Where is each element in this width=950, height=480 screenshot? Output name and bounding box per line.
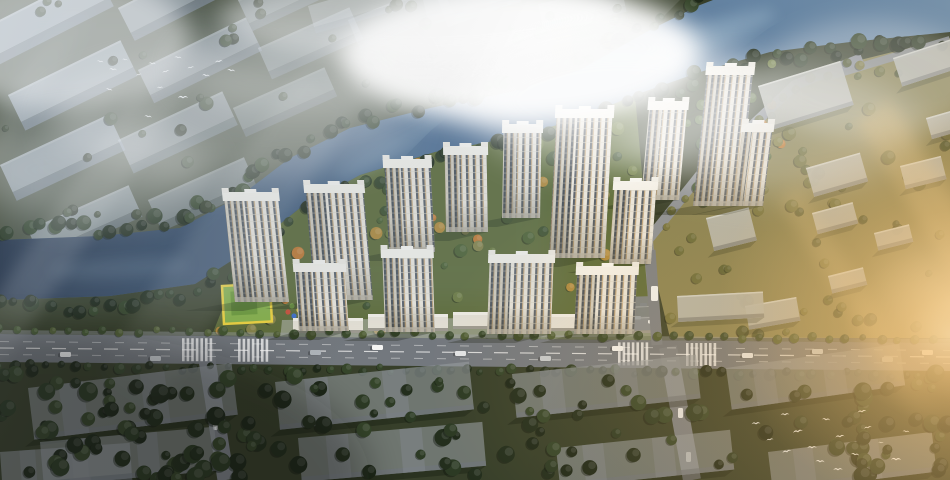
atmosphere xyxy=(0,0,950,480)
scene-svg xyxy=(0,0,950,480)
color-grade xyxy=(0,0,950,480)
aerial-rendering xyxy=(0,0,950,480)
